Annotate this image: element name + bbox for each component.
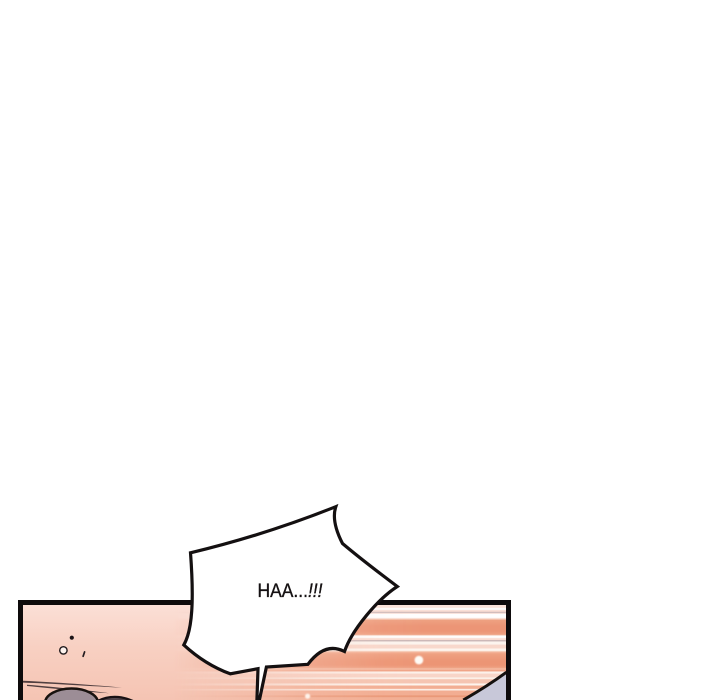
- svg-text:HAA...!!!: HAA...!!!: [258, 580, 324, 602]
